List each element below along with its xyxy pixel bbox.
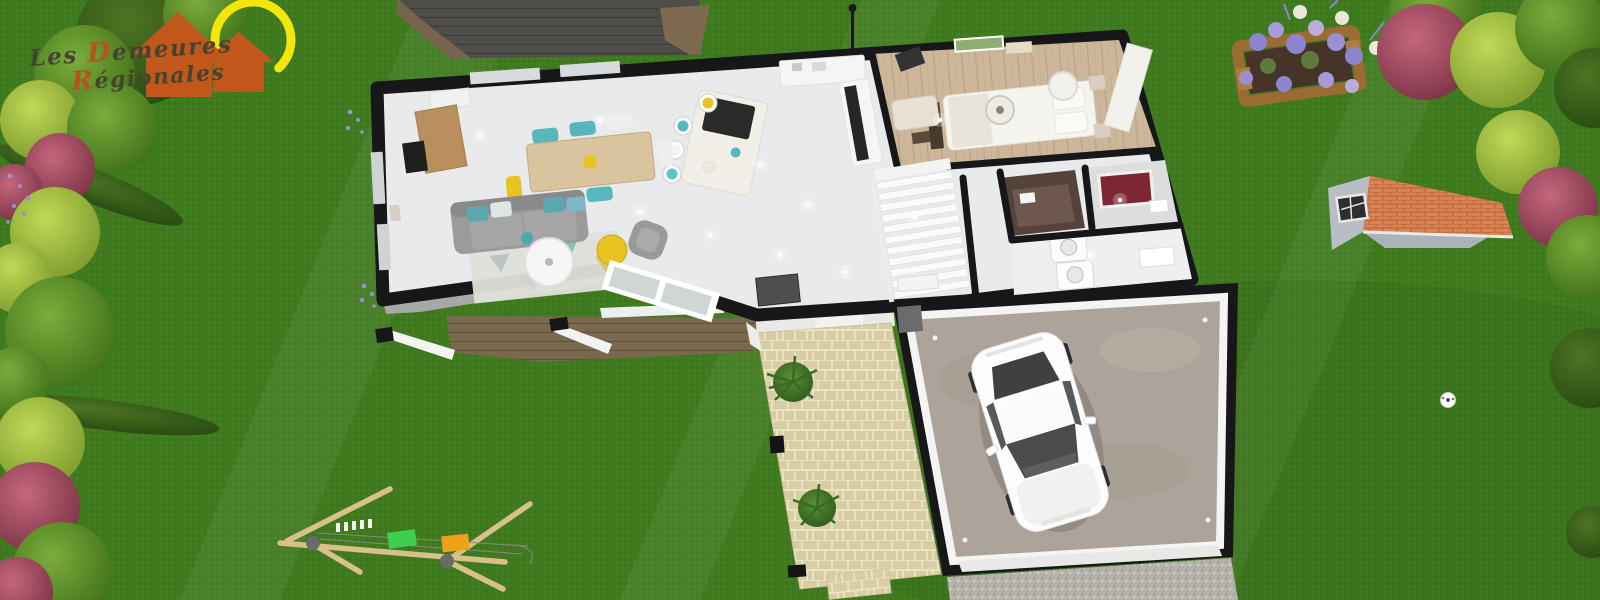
scene-3d-floorplan: Les Demeures Régionales (0, 0, 1600, 600)
hall-console (897, 274, 938, 291)
cloth-orange (441, 534, 470, 553)
garage-side-door (897, 305, 923, 333)
lamp-post-head (849, 4, 857, 12)
front-door (756, 274, 801, 306)
laundry-counter (1139, 247, 1174, 268)
pillow-white (490, 201, 512, 218)
deck-beam-cap (549, 317, 568, 331)
window-left (377, 224, 391, 271)
pillow (1054, 111, 1088, 134)
bedroom-window (955, 36, 1004, 51)
pillow-blue (566, 196, 586, 212)
coffee-table-decor (545, 258, 553, 266)
bed-throw (948, 93, 993, 148)
stool-teal (521, 232, 533, 244)
bedroom-curtain (1006, 41, 1033, 54)
dressing-floor (1012, 184, 1075, 227)
round-table (1049, 72, 1077, 100)
pillow-teal (543, 196, 565, 213)
bathroom (1085, 160, 1178, 228)
door-mat (788, 564, 807, 577)
pendant-lamp-bulb (996, 106, 1004, 114)
dining-chair (656, 139, 674, 166)
pole-junction (306, 536, 320, 550)
car-mirror (1085, 417, 1096, 424)
side-table-yellow (597, 235, 627, 265)
tv-screen (402, 141, 428, 174)
toilet (1150, 199, 1169, 213)
soccer-ball (1441, 393, 1456, 408)
dining-chair (569, 120, 596, 137)
kitchen-appliance (792, 63, 803, 72)
sink (1020, 192, 1036, 204)
shed-window (1336, 192, 1368, 222)
deck-beam-cap (375, 327, 394, 343)
bollard-light (769, 436, 784, 454)
floor-highlight (1100, 328, 1200, 372)
pole-junction (440, 554, 454, 568)
nightstand (1088, 75, 1105, 91)
garage (893, 283, 1238, 576)
floorplan-render: Les Demeures Régionales (0, 0, 1600, 600)
loveseat (891, 95, 940, 131)
dining-chair (606, 113, 633, 130)
dining-chair (586, 186, 613, 203)
pillow-teal (466, 205, 488, 222)
kitchen-appliance (812, 62, 827, 72)
